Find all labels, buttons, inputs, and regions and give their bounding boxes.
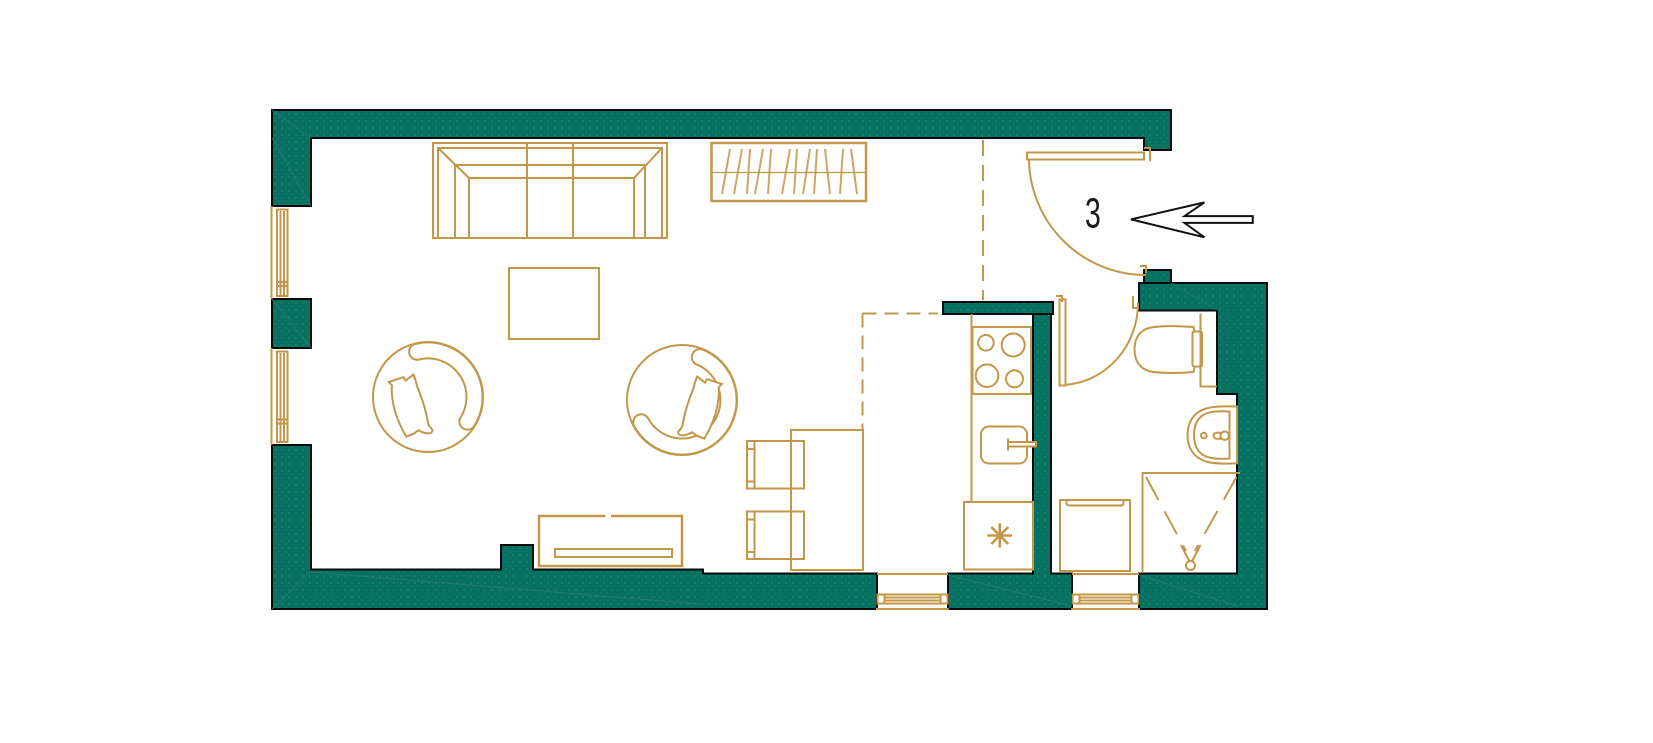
svg-text:3: 3	[1085, 189, 1101, 237]
